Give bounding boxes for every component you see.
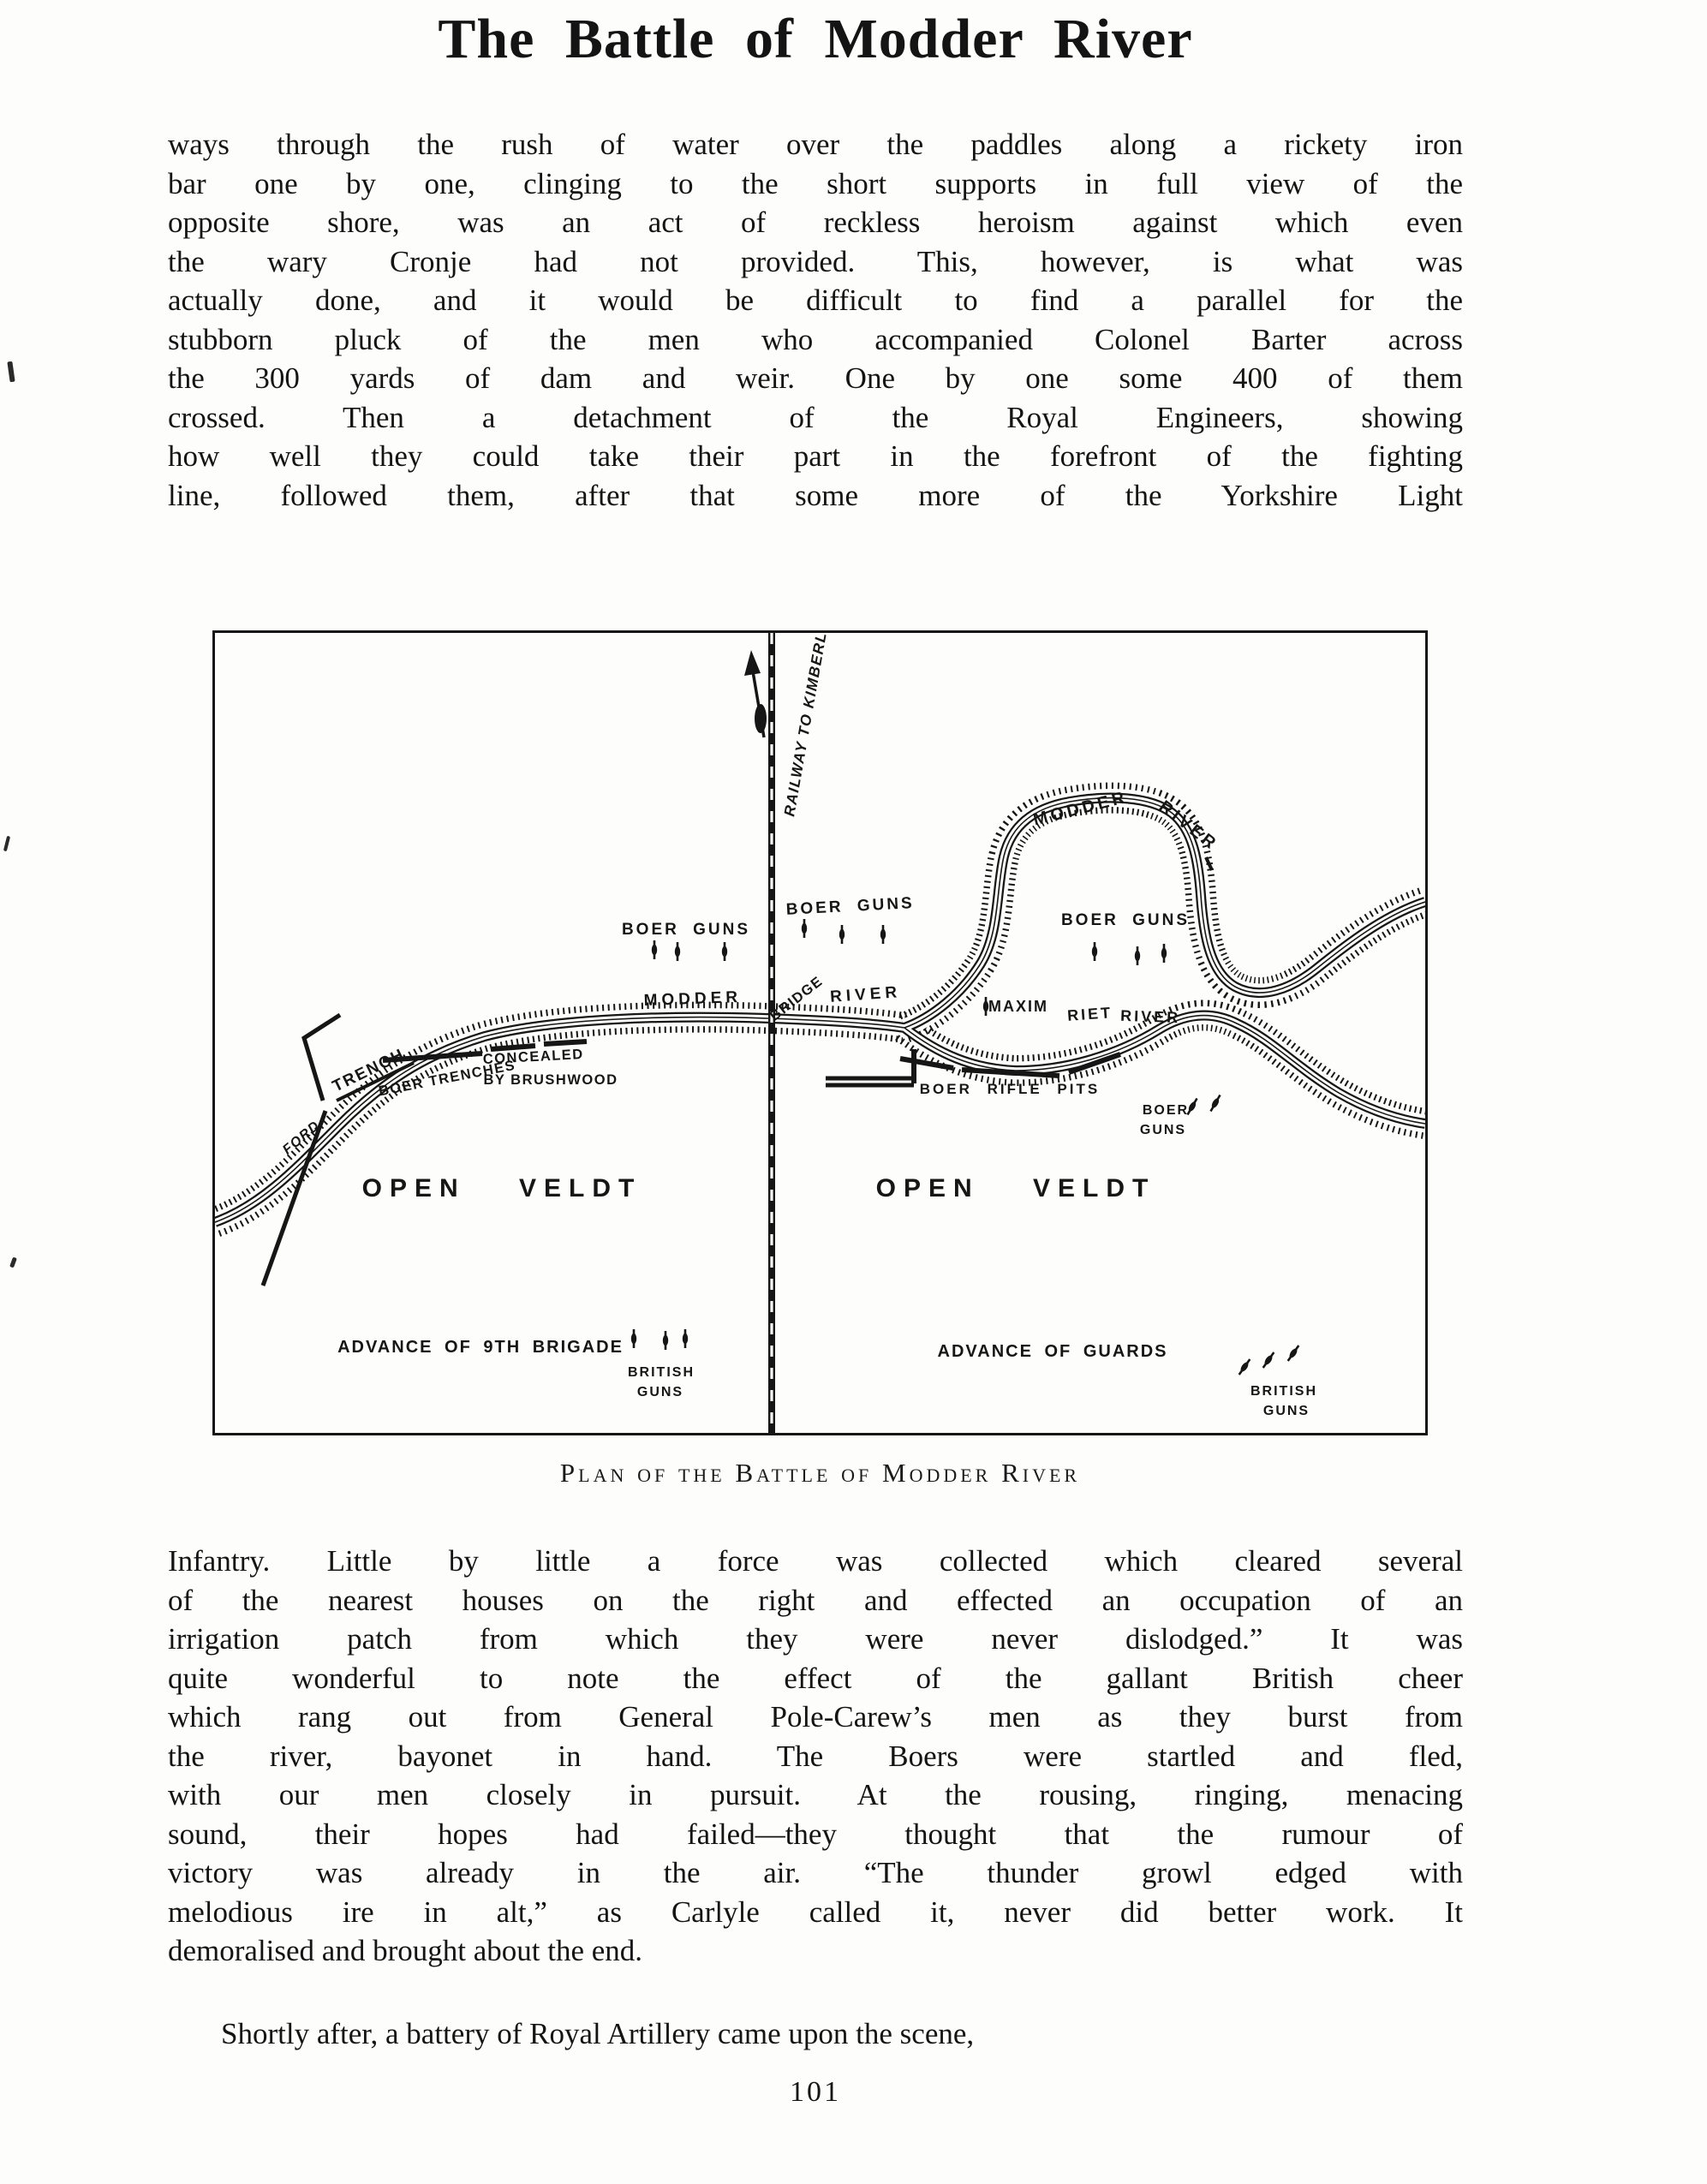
text-line: actually done, and it would be difficult… — [168, 281, 1463, 320]
map-label-british-guns-left-1: BRITISH — [628, 1365, 695, 1380]
british-gun-icon — [663, 1331, 668, 1350]
boer-gun-icon — [1135, 946, 1140, 965]
boer-gun-icon — [722, 942, 727, 961]
battle-plan-map: RAILWAY TO KIMBERLEY MODDER RIVER BOER G… — [212, 630, 1428, 1435]
map-label-advance-brigade: ADVANCE OF 9TH BRIGADE — [337, 1338, 624, 1357]
book-page: The Battle of Modder River ways through … — [0, 0, 1707, 2184]
text-line: victory was already in the air. “The thu… — [168, 1853, 1463, 1893]
north-arrow-icon — [744, 650, 767, 737]
text-line: of the nearest houses on the right and e… — [168, 1581, 1463, 1620]
map-label-british-guns-right-1: BRITISH — [1250, 1384, 1317, 1399]
page-title: The Battle of Modder River — [168, 7, 1463, 72]
body-paragraph-1: ways through the rush of water over the … — [168, 125, 1463, 515]
map-label-british-guns-left-2: GUNS — [637, 1385, 683, 1399]
boer-gun-icon — [802, 919, 807, 938]
british-gun-icon — [1286, 1344, 1301, 1363]
body-paragraph-3: Shortly after, a battery of Royal Artill… — [168, 2014, 1463, 2054]
map-label-boer-guns-left: BOER GUNS — [622, 921, 750, 939]
river-hatching — [215, 798, 1425, 1222]
text-line: crossed. Then a detachment of the Royal … — [168, 398, 1463, 438]
map-label-boer-guns-right-1: BOER — [1143, 1103, 1189, 1118]
text-line: melodious ire in alt,” as Carlyle called… — [168, 1893, 1463, 1932]
text-line: with our men closely in pursuit. At the … — [168, 1775, 1463, 1815]
boer-gun-icon — [1161, 944, 1167, 963]
text-line: the wary Cronje had not provided. This, … — [168, 242, 1463, 282]
map-label-british-guns-right-2: GUNS — [1263, 1404, 1310, 1418]
boer-gun-icon — [839, 925, 845, 944]
map-label-boer-guns-center: BOER GUNS — [785, 894, 915, 919]
text-line: line, followed them, after that some mor… — [168, 476, 1463, 516]
body-paragraph-2: Infantry. Little by little a force was c… — [168, 1542, 1463, 1971]
battle-plan-drawing: RAILWAY TO KIMBERLEY MODDER RIVER BOER G… — [215, 633, 1425, 1433]
map-label-boer-guns-loop: BOER GUNS — [1061, 911, 1190, 929]
map-label-open-veldt-left: OPEN VELDT — [362, 1174, 642, 1202]
scan-artifact — [7, 361, 15, 383]
british-gun-icon — [683, 1329, 688, 1348]
map-label-river-mid: RIVER — [829, 983, 901, 1006]
british-gun-icon — [1237, 1358, 1252, 1376]
text-line: which rang out from General Pole-Carew’s… — [168, 1698, 1463, 1737]
figure-caption: Plan of the Battle of Modder River — [212, 1458, 1428, 1489]
map-label-riet-1: RIET — [1066, 1004, 1113, 1024]
map-label-boer-guns-right-2: GUNS — [1140, 1123, 1186, 1137]
text-line: ways through the rush of water over the … — [168, 125, 1463, 164]
map-label-maxim: MAXIM — [988, 998, 1048, 1015]
boer-gun-icon — [1209, 1094, 1223, 1113]
map-label-railway: RAILWAY TO KIMBERLEY — [780, 633, 833, 818]
modder-river-course — [215, 798, 1425, 1222]
text-line: Infantry. Little by little a force was c… — [168, 1542, 1463, 1581]
page-number: 101 — [168, 2076, 1463, 2109]
text-line: the river, bayonet in hand. The Boers we… — [168, 1737, 1463, 1776]
british-gun-icon — [631, 1329, 636, 1348]
scan-artifact — [9, 1257, 17, 1268]
boer-gun-icon — [675, 942, 680, 961]
text-line: the 300 yards of dam and weir. One by on… — [168, 359, 1463, 398]
map-label-boer-rifle-pits: BOER RIFLE PITS — [920, 1081, 1100, 1097]
map-label-modder-mid: MODDER — [643, 988, 742, 1010]
text-line: how well they could take their part in t… — [168, 437, 1463, 476]
dam-weir-mark — [826, 1049, 914, 1085]
boer-gun-icon — [652, 940, 657, 959]
text-line: irrigation patch from which they were ne… — [168, 1620, 1463, 1659]
text-line: opposite shore, was an act of reckless h… — [168, 203, 1463, 242]
text-line: bar one by one, clinging to the short su… — [168, 164, 1463, 204]
text-line: Shortly after, a battery of Royal Artill… — [168, 2014, 1463, 2054]
scan-artifact — [3, 836, 10, 851]
boer-gun-icon — [1092, 942, 1097, 961]
text-line: stubborn pluck of the men who accompanie… — [168, 320, 1463, 360]
text-line: sound, their hopes had failed—they thoug… — [168, 1815, 1463, 1854]
text-line: quite wonderful to note the effect of th… — [168, 1659, 1463, 1698]
map-label-advance-guards: ADVANCE OF GUARDS — [938, 1342, 1168, 1361]
british-gun-icon — [1261, 1351, 1276, 1369]
map-label-boer-trenches-3: BY BRUSHWOOD — [483, 1072, 618, 1088]
text-line: demoralised and brought about the end. — [168, 1931, 1463, 1971]
boer-gun-icon — [880, 925, 886, 944]
map-label-riet-2: RIVER — [1120, 1007, 1181, 1026]
map-label-open-veldt-right: OPEN VELDT — [876, 1174, 1156, 1202]
